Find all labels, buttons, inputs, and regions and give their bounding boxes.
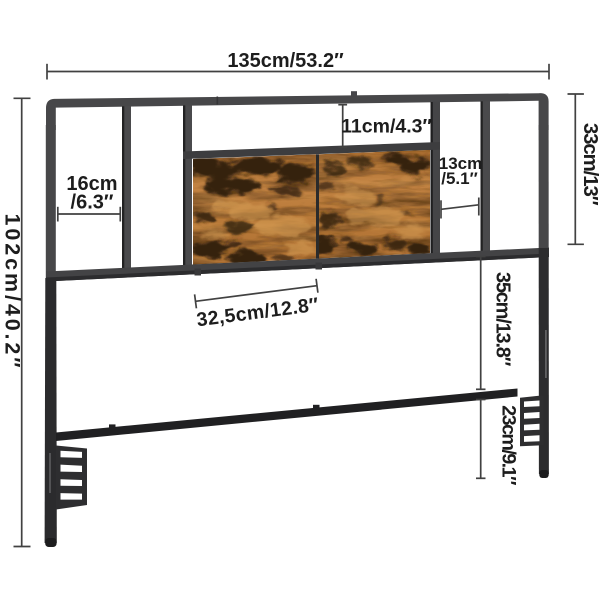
svg-text:135cm/53.2″: 135cm/53.2″ — [227, 50, 344, 72]
svg-text:/6.3″: /6.3″ — [71, 192, 114, 214]
svg-text:33cm/13″: 33cm/13″ — [579, 123, 600, 206]
svg-text:11cm/4.3″: 11cm/4.3″ — [341, 116, 432, 138]
svg-text:35cm/13.8″: 35cm/13.8″ — [491, 272, 513, 367]
svg-text:23cm/9.1″: 23cm/9.1″ — [497, 405, 519, 486]
svg-text:102cm/40.2″: 102cm/40.2″ — [1, 214, 25, 371]
svg-text:/5.1″: /5.1″ — [441, 169, 478, 188]
